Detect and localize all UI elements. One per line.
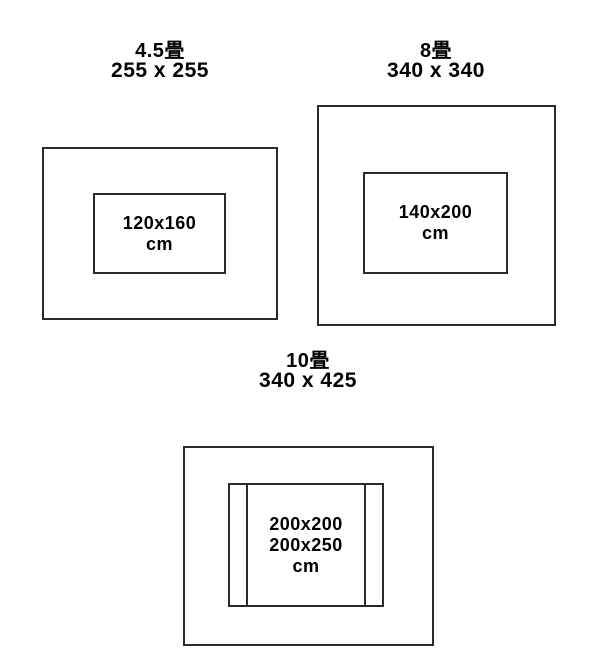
rug-size-line: 120x160	[123, 213, 197, 234]
diagram-8-tatami: 8畳 340 x 340 140x200 cm	[300, 0, 600, 340]
room-outline: 140x200 cm	[317, 105, 556, 326]
room-dimensions-label: 340 x 340	[336, 61, 536, 80]
diagram-4-5-tatami: 4.5畳 255 x 255 120x160 cm	[0, 0, 300, 340]
room-dimensions-label: 340 x 425	[208, 371, 408, 390]
rug-size-line: 140x200	[399, 202, 473, 223]
rug-size-unit: cm	[146, 234, 173, 255]
rug-size-unit: cm	[292, 556, 319, 577]
rug-outline: 200x200 200x250 cm	[228, 483, 384, 607]
room-outline: 120x160 cm	[42, 147, 278, 320]
diagram-label: 4.5畳 255 x 255	[60, 41, 260, 80]
tatami-size-title: 8畳	[336, 41, 536, 61]
room-rug-size-diagram: 4.5畳 255 x 255 120x160 cm 8畳 340 x 340 1…	[0, 0, 600, 650]
diagram-label: 10畳 340 x 425	[208, 351, 408, 390]
diagram-10-tatami: 10畳 340 x 425 200x200 200x250 cm	[0, 340, 600, 650]
rug-outline: 140x200 cm	[363, 172, 508, 274]
diagram-label: 8畳 340 x 340	[336, 41, 536, 80]
room-outline: 200x200 200x250 cm	[183, 446, 434, 646]
rug-size-line: 200x200	[269, 514, 343, 535]
tatami-size-title: 10畳	[208, 351, 408, 371]
rug-size-line: 200x250	[269, 535, 343, 556]
rug-outline: 120x160 cm	[93, 193, 226, 274]
rug-width-marker-left	[246, 485, 248, 605]
rug-width-marker-right	[364, 485, 366, 605]
rug-size-unit: cm	[422, 223, 449, 244]
room-dimensions-label: 255 x 255	[60, 61, 260, 80]
tatami-size-title: 4.5畳	[60, 41, 260, 61]
